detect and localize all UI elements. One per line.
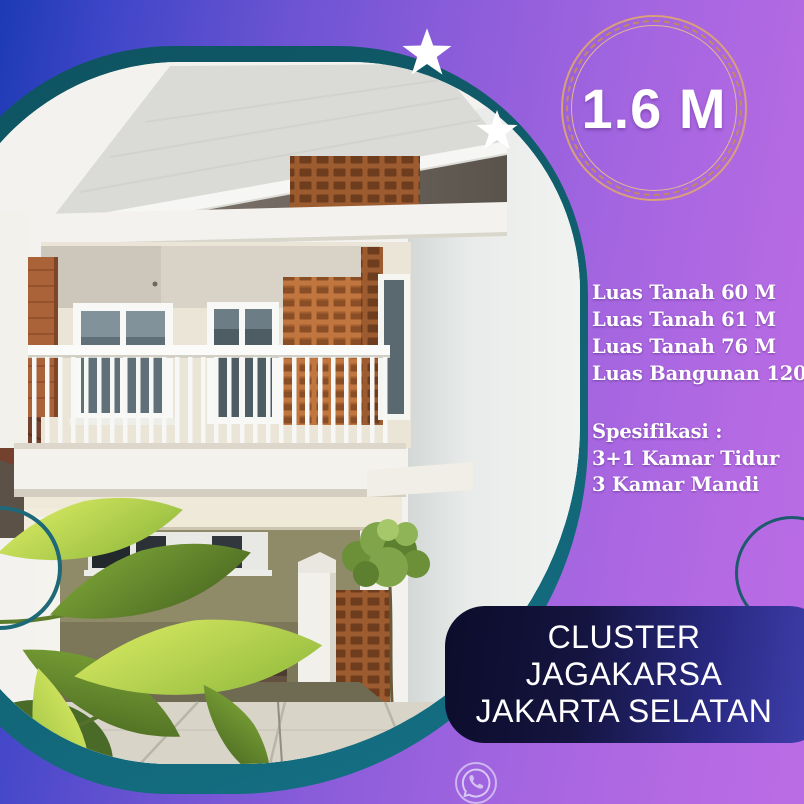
roster-upper [290,156,420,212]
spec-details: Spesifikasi : 3+1 Kamar Tidur 3 Kamar Ma… [592,419,779,499]
porch-ceiling-shade [41,246,161,308]
land-specs: Luas Tanah 60 M Luas Tanah 61 M Luas Tan… [592,279,804,387]
location-line: CLUSTER [548,619,701,656]
spec-item: 3 Kamar Mandi [592,472,779,499]
land-spec-line: Luas Bangunan 120 M [592,360,804,387]
left-wall-edge [0,212,28,448]
star-icon [476,110,518,150]
balcony-slab [14,443,473,497]
location-line: JAGAKARSA [526,656,723,693]
price-badge: 1.6 M [561,15,747,201]
star-icon [402,28,452,76]
ceiling-light [153,282,158,287]
location-line: JAKARTA SELATAN [476,693,773,730]
spec-heading: Spesifikasi : [592,419,779,446]
location-card: CLUSTER JAGAKARSA JAKARTA SELATAN [445,606,804,743]
land-spec-line: Luas Tanah 60 M [592,279,804,306]
whatsapp-icon[interactable] [454,761,498,804]
spec-item: 3+1 Kamar Tidur [592,446,779,473]
land-spec-line: Luas Tanah 76 M [592,333,804,360]
poster-canvas: 1.6 M Luas Tanah 60 M Luas Tanah 61 M Lu… [0,0,804,804]
land-spec-line: Luas Tanah 61 M [592,306,804,333]
price-label: 1.6 M [561,15,747,201]
